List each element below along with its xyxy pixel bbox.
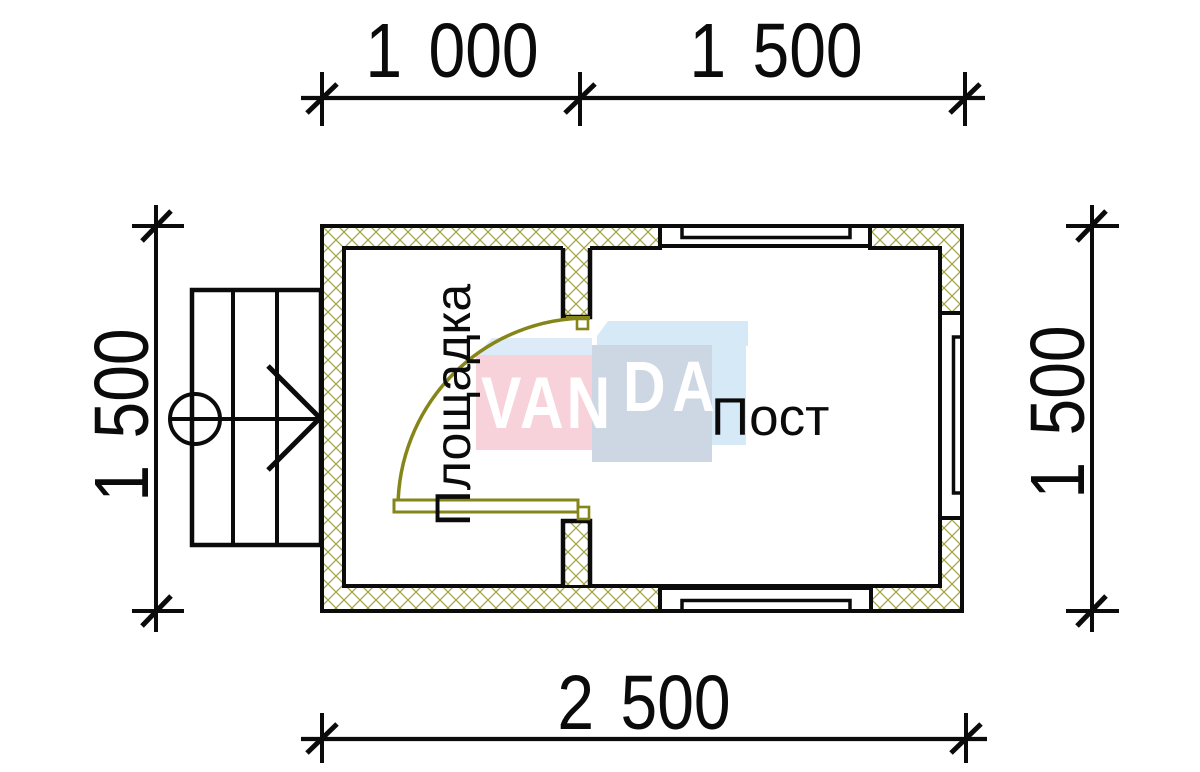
svg-text:2 500: 2 500 [557, 660, 730, 746]
svg-text:1 500: 1 500 [79, 328, 165, 501]
svg-text:Пост: Пост [711, 388, 829, 447]
svg-text:1 000: 1 000 [365, 8, 538, 94]
svg-text:DA: DA [623, 347, 721, 426]
svg-text:1 500: 1 500 [689, 8, 862, 94]
svg-text:VAN: VAN [481, 363, 613, 445]
svg-text:1 500: 1 500 [1015, 325, 1101, 498]
svg-text:Площадка: Площадка [425, 284, 481, 527]
